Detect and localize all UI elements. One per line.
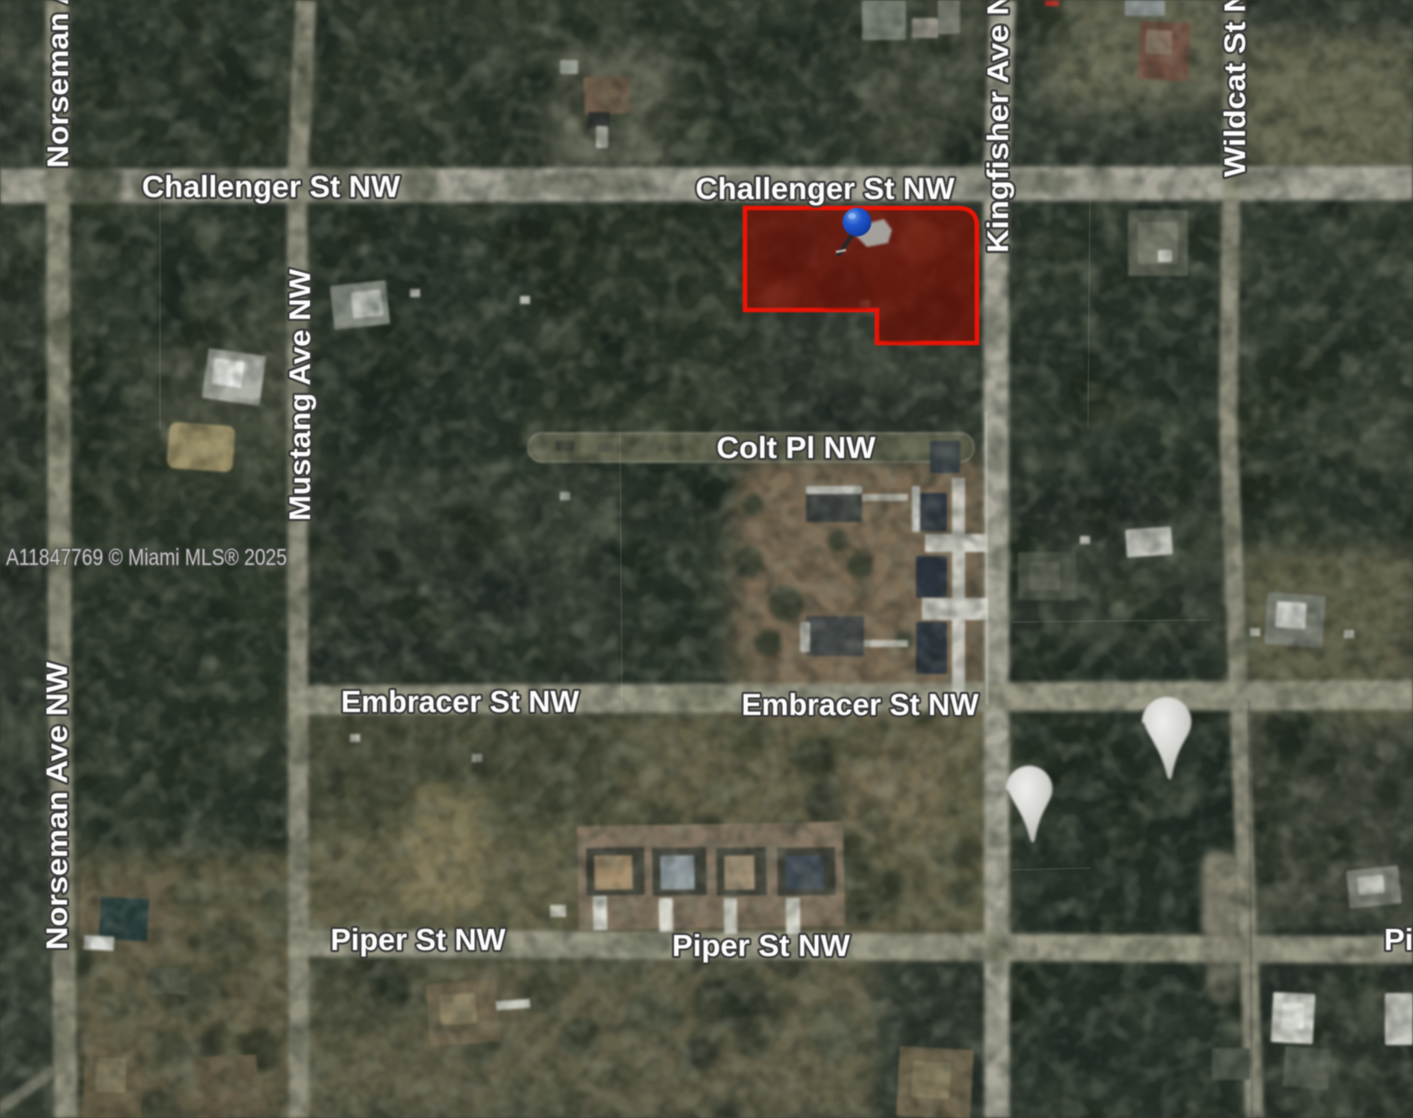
svg-text:Embracer St NW: Embracer St NW	[742, 687, 980, 722]
svg-text:Challenger St NW: Challenger St NW	[142, 169, 401, 204]
svg-text:Piper St NW: Piper St NW	[672, 928, 851, 963]
svg-text:Kingfisher Ave NW: Kingfisher Ave NW	[982, 0, 1015, 253]
svg-text:Norseman Ave NW: Norseman Ave NW	[41, 661, 74, 950]
svg-text:A11847769 © Miami MLS® 2025: A11847769 © Miami MLS® 2025	[6, 544, 287, 570]
svg-text:Norseman Ave NW: Norseman Ave NW	[42, 0, 75, 168]
svg-text:Mustang Ave NW: Mustang Ave NW	[284, 268, 317, 521]
svg-text:Piper St NW: Piper St NW	[1384, 922, 1413, 957]
svg-text:Wildcat St NW: Wildcat St NW	[1219, 0, 1252, 177]
svg-text:Colt Pl NW: Colt Pl NW	[717, 430, 877, 465]
svg-text:Challenger St NW: Challenger St NW	[696, 171, 956, 206]
svg-text:Piper St NW: Piper St NW	[331, 922, 507, 957]
svg-text:Embracer St NW: Embracer St NW	[341, 684, 580, 719]
